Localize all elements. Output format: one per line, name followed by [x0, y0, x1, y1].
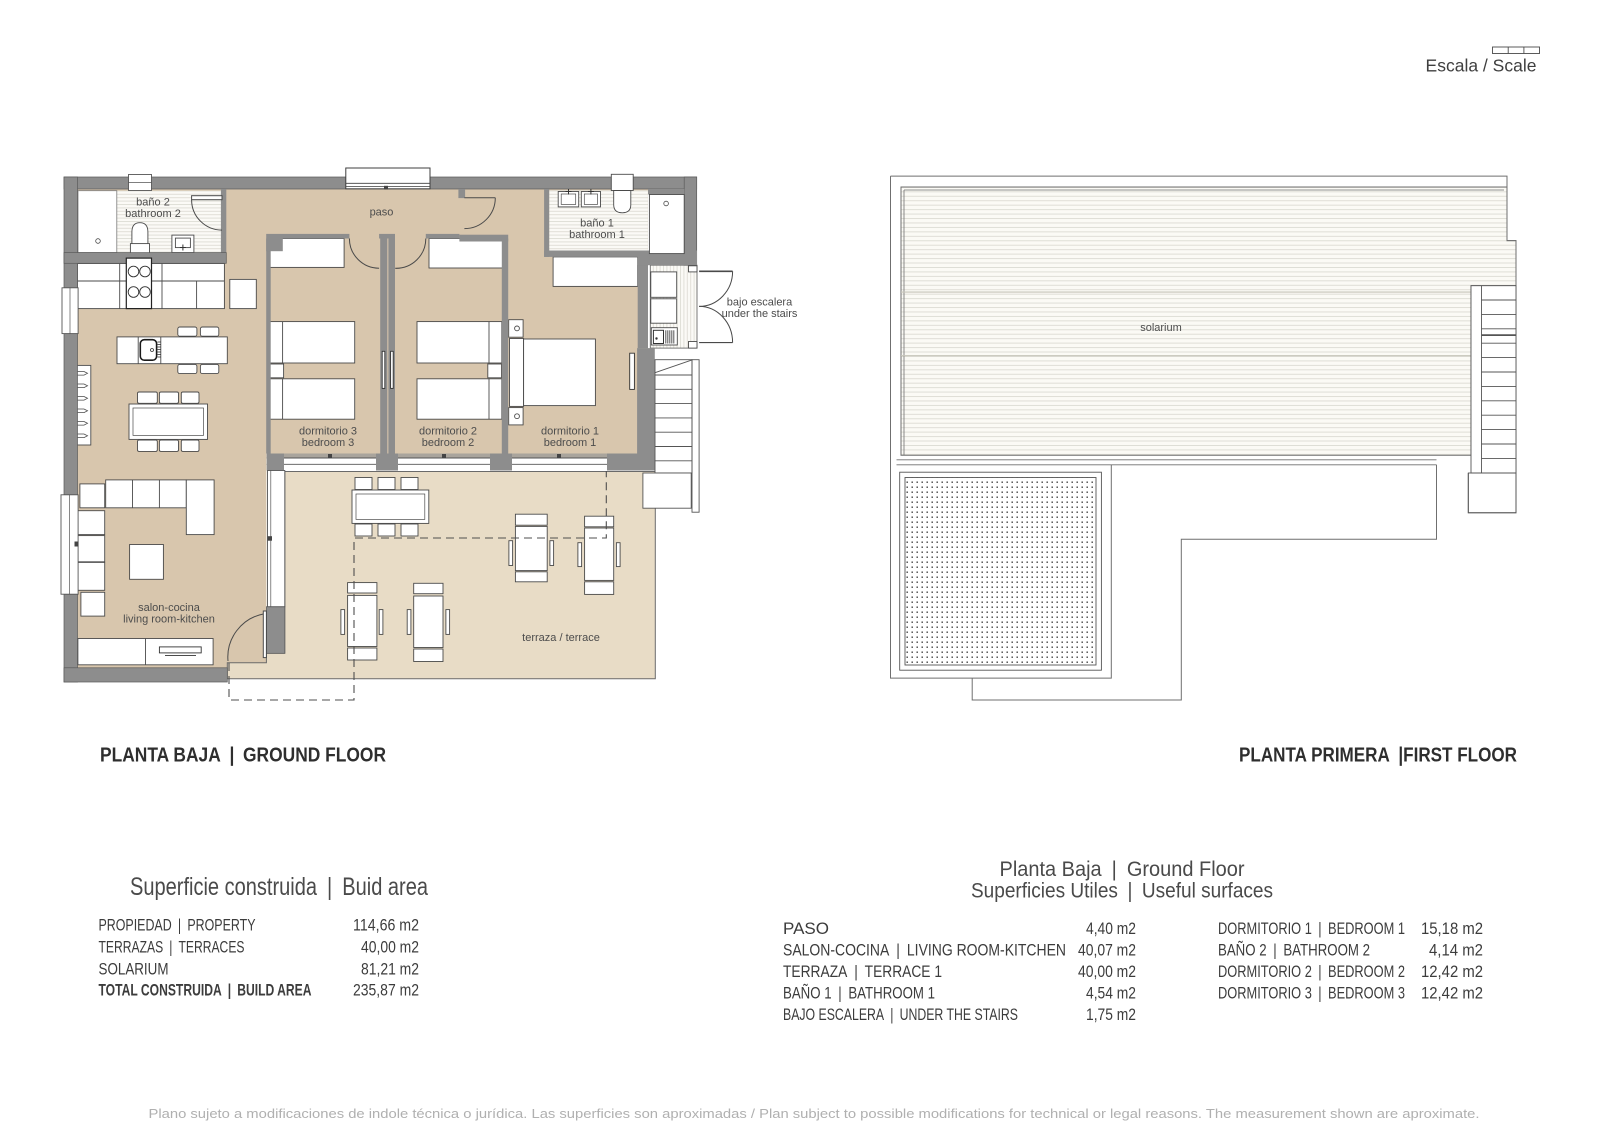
svg-text:dormitorio 1: dormitorio 1: [541, 426, 599, 438]
svg-text:40,00 m2: 40,00 m2: [361, 939, 419, 957]
svg-text:114,66 m2: 114,66 m2: [353, 917, 419, 935]
svg-text:BAJO ESCALERA | UNDER THE STAI: BAJO ESCALERA | UNDER THE STAIRS: [783, 1006, 1018, 1024]
svg-text:Escala / Scale: Escala / Scale: [1426, 56, 1537, 76]
svg-text:living room-kitchen: living room-kitchen: [123, 614, 215, 626]
svg-text:bathroom 1: bathroom 1: [569, 229, 625, 241]
svg-text:40,00 m2: 40,00 m2: [1078, 963, 1136, 981]
svg-text:BAÑO 1 | BATHROOM 1: BAÑO 1 | BATHROOM 1: [783, 983, 935, 1003]
svg-text:under the stairs: under the stairs: [722, 308, 798, 320]
svg-text:solarium: solarium: [1140, 322, 1182, 334]
svg-text:TOTAL CONSTRUIDA | BUILD AREA: TOTAL CONSTRUIDA | BUILD AREA: [99, 982, 312, 1000]
svg-text:DORMITORIO 3 | BEDROOM 3: DORMITORIO 3 | BEDROOM 3: [1218, 985, 1405, 1003]
svg-text:SALON-COCINA | LIVING ROOM-KIT: SALON-COCINA | LIVING ROOM-KITCHEN: [783, 942, 1066, 960]
svg-text:12,42 m2: 12,42 m2: [1421, 985, 1483, 1003]
svg-text:DORMITORIO 2 | BEDROOM 2: DORMITORIO 2 | BEDROOM 2: [1218, 963, 1405, 981]
svg-text:PLANTA BAJA | GROUND FLOOR: PLANTA BAJA | GROUND FLOOR: [100, 744, 386, 767]
svg-text:40,07 m2: 40,07 m2: [1078, 942, 1136, 960]
svg-text:Superficie construida | Buid a: Superficie construida | Buid area: [130, 873, 428, 901]
svg-text:baño 2: baño 2: [136, 197, 170, 209]
svg-text:baño 1: baño 1: [580, 218, 614, 230]
svg-text:dormitorio 2: dormitorio 2: [419, 426, 477, 438]
svg-text:12,42 m2: 12,42 m2: [1421, 963, 1483, 981]
svg-text:salon-cocina: salon-cocina: [138, 602, 201, 614]
svg-text:4,54 m2: 4,54 m2: [1086, 985, 1136, 1003]
svg-text:dormitorio 3: dormitorio 3: [299, 426, 357, 438]
svg-text:TERRAZA | TERRACE 1: TERRAZA | TERRACE 1: [783, 963, 942, 981]
svg-text:SOLARIUM: SOLARIUM: [99, 961, 169, 979]
svg-text:PASO: PASO: [783, 920, 829, 938]
svg-text:bedroom 2: bedroom 2: [422, 437, 475, 449]
svg-text:Plano sujeto a modificaciones: Plano sujeto a modificaciones de indole …: [149, 1107, 1480, 1121]
svg-text:bedroom 1: bedroom 1: [544, 437, 597, 449]
svg-text:1,75 m2: 1,75 m2: [1086, 1006, 1136, 1024]
svg-text:DORMITORIO 1 | BEDROOM 1: DORMITORIO 1 | BEDROOM 1: [1218, 920, 1405, 938]
svg-text:terraza / terrace: terraza / terrace: [522, 632, 600, 644]
svg-text:4,14 m2: 4,14 m2: [1429, 942, 1483, 960]
svg-text:bathroom 2: bathroom 2: [125, 208, 181, 220]
svg-text:15,18 m2: 15,18 m2: [1421, 920, 1483, 938]
svg-text:paso: paso: [370, 207, 394, 219]
svg-text:TERRAZAS | TERRACES: TERRAZAS | TERRACES: [99, 939, 245, 957]
svg-text:4,40 m2: 4,40 m2: [1086, 920, 1136, 938]
svg-text:235,87 m2: 235,87 m2: [353, 982, 419, 1000]
svg-text:bajo escalera: bajo escalera: [727, 297, 793, 309]
svg-text:81,21 m2: 81,21 m2: [361, 961, 419, 979]
svg-text:BAÑO 2 | BATHROOM 2: BAÑO 2 | BATHROOM 2: [1218, 940, 1370, 960]
svg-text:PLANTA PRIMERA |FIRST FLOOR: PLANTA PRIMERA |FIRST FLOOR: [1239, 744, 1517, 767]
svg-text:Planta Baja | Ground Floor: Planta Baja | Ground Floor: [1000, 858, 1245, 881]
svg-text:PROPIEDAD | PROPERTY: PROPIEDAD | PROPERTY: [99, 917, 256, 935]
svg-text:Superficies Utiles | Useful su: Superficies Utiles | Useful surfaces: [971, 880, 1273, 903]
svg-text:bedroom 3: bedroom 3: [302, 437, 355, 449]
